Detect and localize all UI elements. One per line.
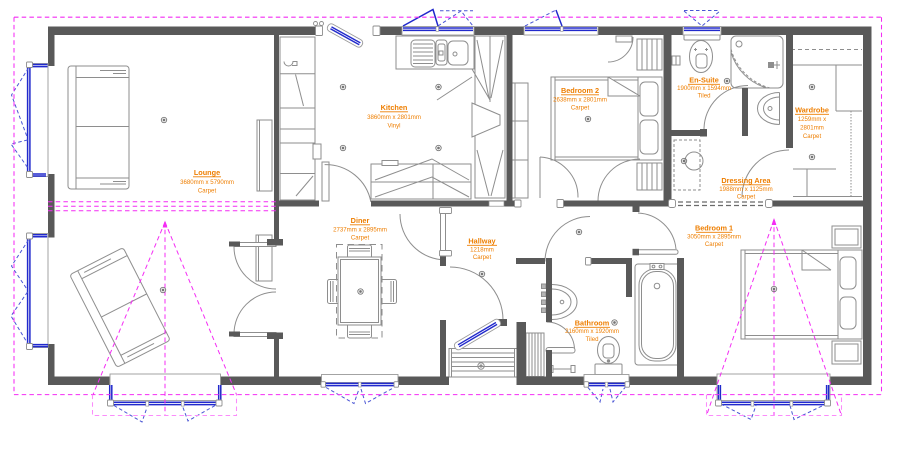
- svg-text:2801mm: 2801mm: [800, 125, 824, 132]
- svg-text:Bathroom: Bathroom: [575, 319, 610, 328]
- svg-text:Tiled: Tiled: [698, 93, 711, 100]
- svg-text:Carpet: Carpet: [473, 254, 492, 261]
- svg-text:En-Suite: En-Suite: [689, 76, 719, 85]
- svg-text:Bedroom 1: Bedroom 1: [695, 224, 733, 233]
- svg-text:3050mm x 2895mm: 3050mm x 2895mm: [687, 234, 741, 241]
- svg-text:1988mm x 1125mm: 1988mm x 1125mm: [719, 186, 772, 193]
- svg-text:Lounge: Lounge: [194, 168, 220, 177]
- svg-text:2160mm x 1920mm: 2160mm x 1920mm: [565, 328, 619, 335]
- svg-text:Hallway: Hallway: [468, 237, 496, 246]
- svg-text:2737mm x 2895mm: 2737mm x 2895mm: [333, 227, 387, 234]
- svg-text:Carpet: Carpet: [571, 105, 590, 112]
- svg-text:3680mm x 5790mm: 3680mm x 5790mm: [180, 179, 234, 186]
- svg-text:Carpet: Carpet: [198, 188, 217, 195]
- svg-text:Wardrobe: Wardrobe: [795, 106, 829, 115]
- svg-text:Carpet: Carpet: [705, 241, 724, 248]
- svg-text:1259mm x: 1259mm x: [798, 116, 826, 123]
- svg-text:1900mm x 1594mm: 1900mm x 1594mm: [677, 85, 731, 92]
- svg-text:Diner: Diner: [351, 216, 370, 225]
- svg-text:3860mm x 2801mm: 3860mm x 2801mm: [367, 114, 421, 121]
- svg-text:Tiled: Tiled: [586, 336, 599, 343]
- svg-text:Kitchen: Kitchen: [381, 103, 408, 112]
- svg-text:Dressing Area: Dressing Area: [721, 176, 771, 185]
- svg-text:Vinyl: Vinyl: [387, 123, 400, 130]
- svg-text:1218mm: 1218mm: [470, 247, 494, 254]
- svg-text:Bedroom 2: Bedroom 2: [561, 86, 599, 95]
- svg-text:Carpet: Carpet: [737, 194, 756, 201]
- svg-text:Carpet: Carpet: [351, 235, 370, 242]
- svg-text:2638mm x 2801mm: 2638mm x 2801mm: [553, 97, 607, 104]
- svg-text:Carpet: Carpet: [803, 133, 822, 140]
